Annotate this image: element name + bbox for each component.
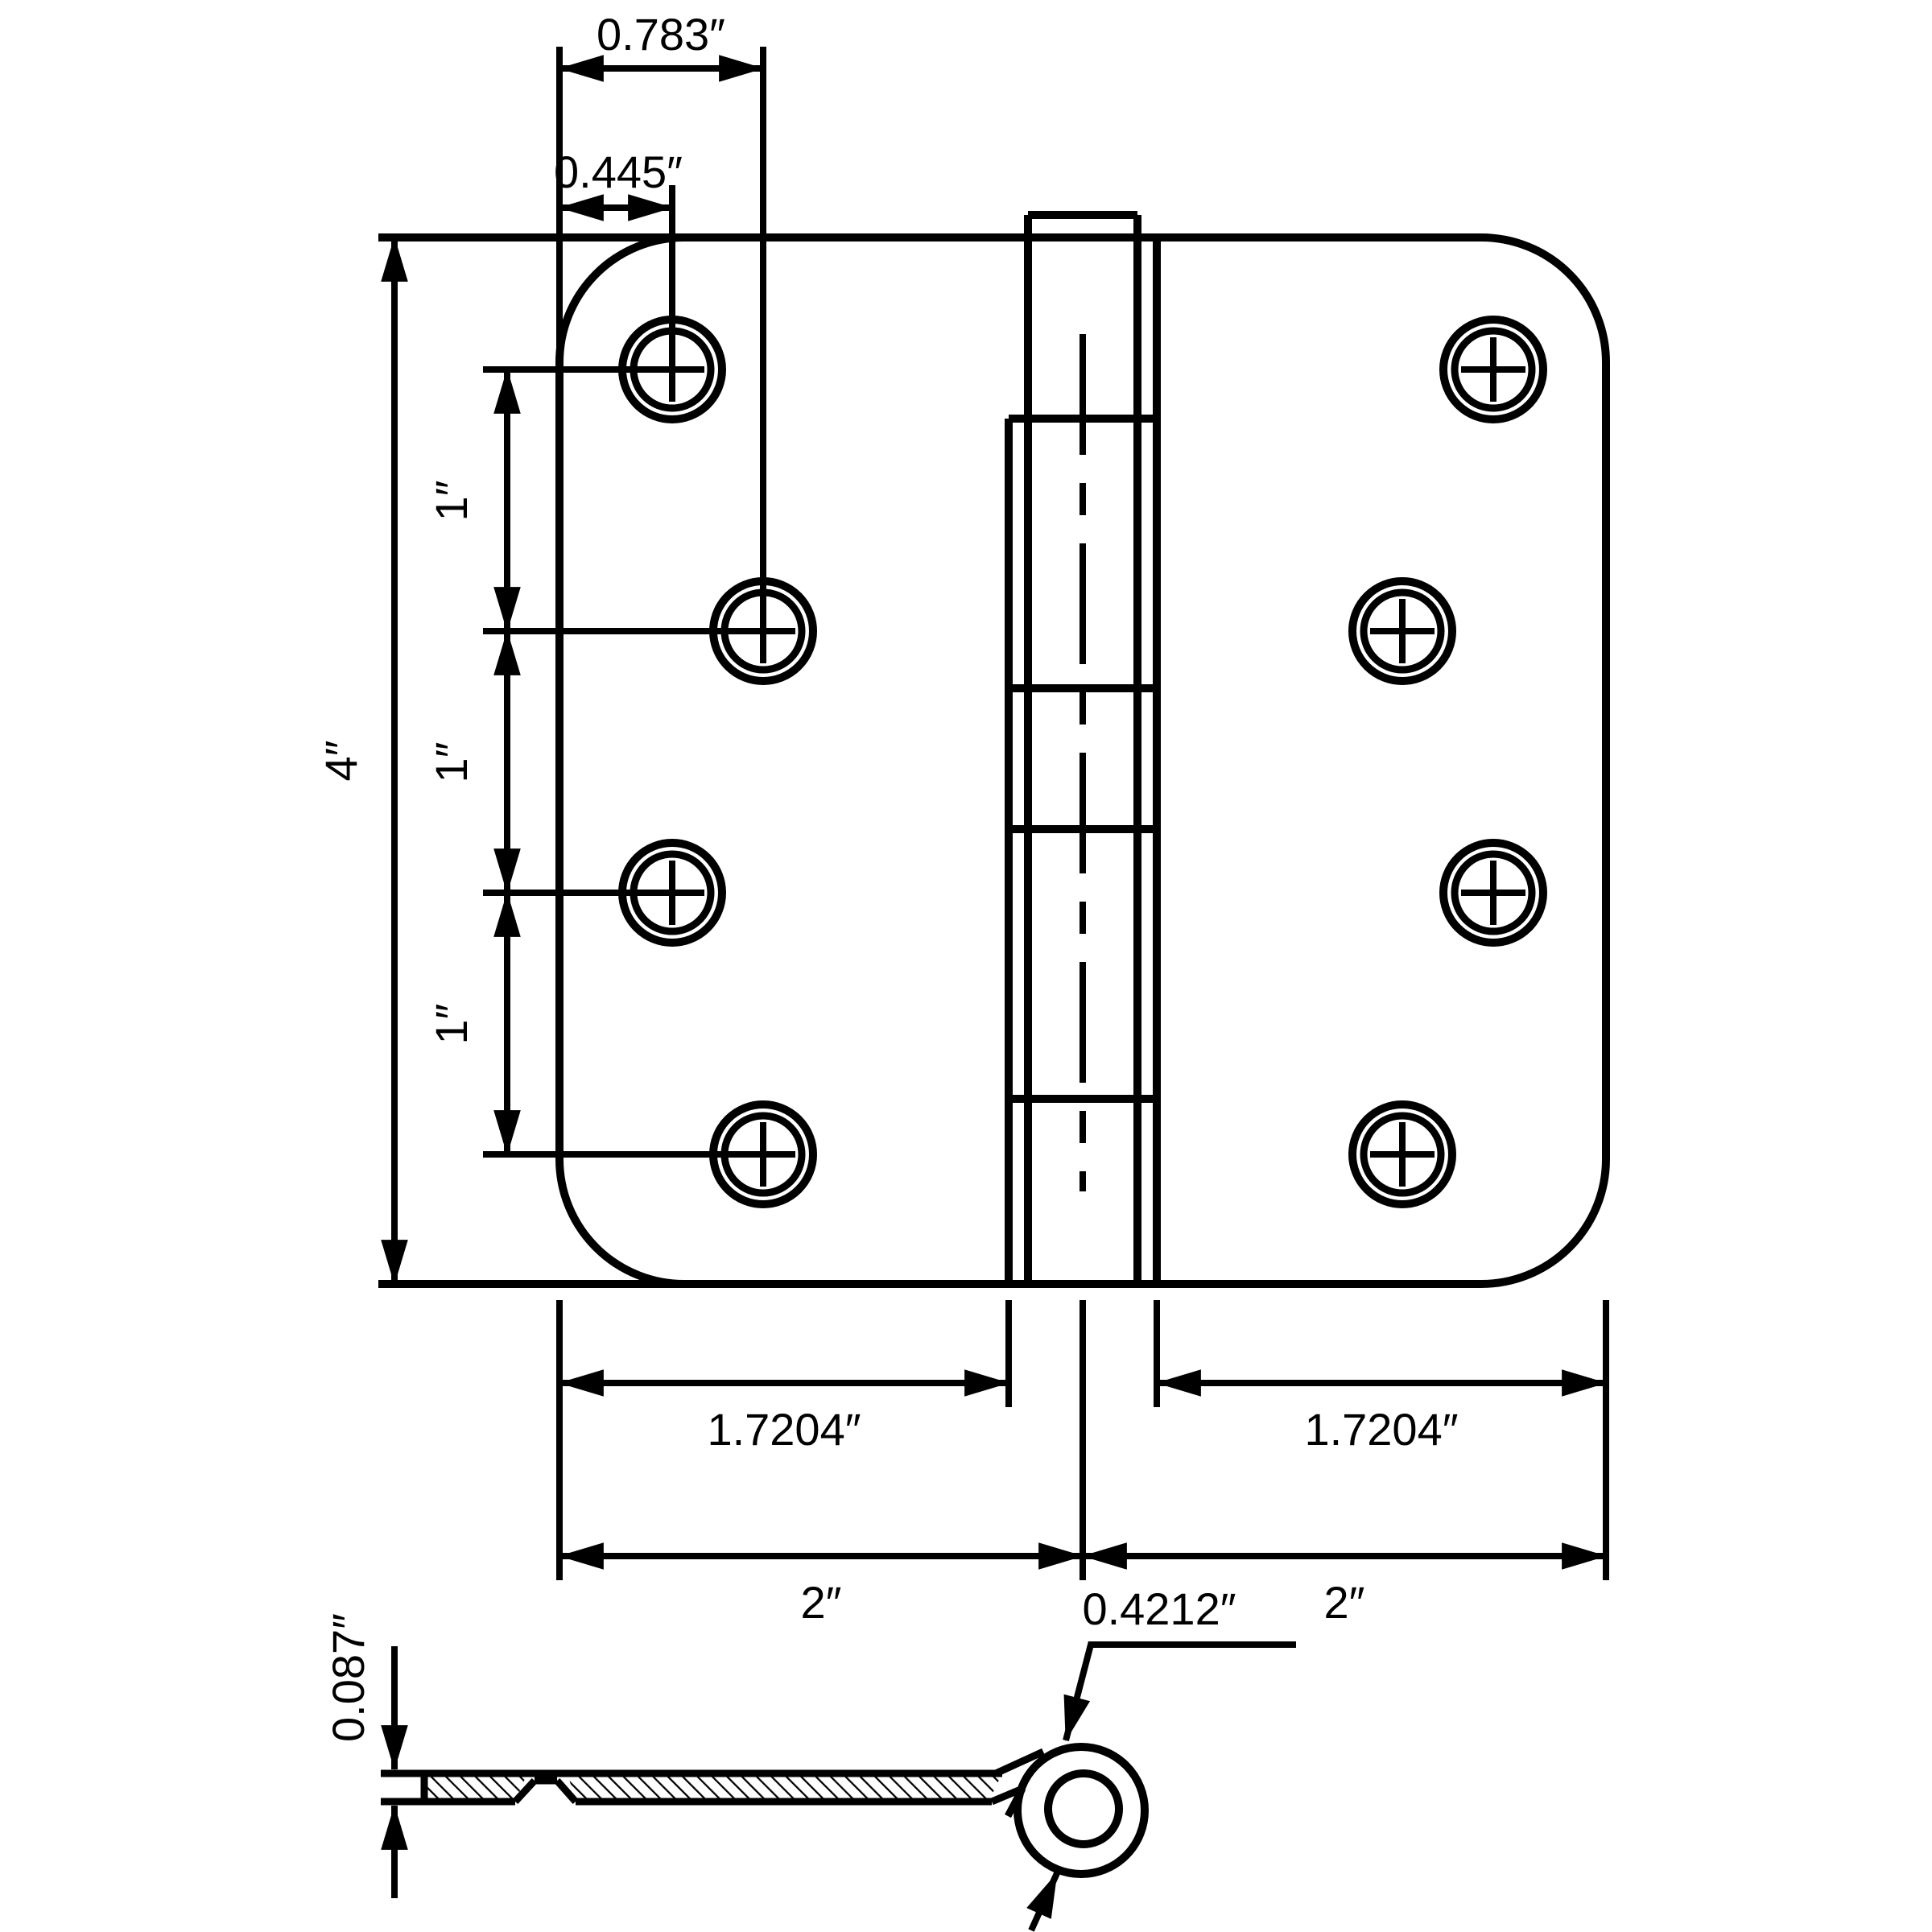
dimension-leaf-thickness: 0.087″ xyxy=(323,1613,394,1898)
screw-hole xyxy=(483,1104,813,1204)
corner-bottom-left xyxy=(559,1159,684,1284)
curl-outer-circle xyxy=(1018,1747,1145,1874)
hatch-area-right xyxy=(568,1773,1002,1802)
dimension-label: 1″ xyxy=(426,481,477,522)
corner-top-left xyxy=(559,237,684,362)
leader-line xyxy=(1066,1645,1296,1740)
dimension-label: 0.4212″ xyxy=(1082,1583,1236,1634)
dimension-overall-height: 4″ xyxy=(316,237,394,1284)
screw-hole xyxy=(483,843,722,943)
corner-top-right xyxy=(1481,237,1606,362)
screw-hole xyxy=(1352,581,1452,681)
leader-knuckle-diameter: 0.4212″ xyxy=(1066,1583,1296,1740)
hinge-barrel xyxy=(1009,215,1157,1284)
screw-holes-right-leaf xyxy=(1352,320,1543,1204)
dimension-leaf-widths: 1.7204″ 1.7204″ 2″ 2″ xyxy=(559,1300,1606,1628)
dimension-label: 0.783″ xyxy=(597,9,725,60)
screw-hole xyxy=(1443,843,1543,943)
dimension-hole-spacing: 1″ 1″ 1″ xyxy=(426,369,507,1154)
dimension-label: 2″ xyxy=(801,1577,842,1628)
dimension-label: 2″ xyxy=(1324,1577,1365,1628)
knuckle-curl xyxy=(992,1747,1145,1874)
hatch-area-left xyxy=(424,1773,527,1802)
curl-inner-circle xyxy=(1048,1773,1119,1844)
dimension-label: 1″ xyxy=(426,742,477,783)
dimension-edge-to-hole-col1: 0.445″ xyxy=(554,147,683,402)
screw-hole xyxy=(1352,1104,1452,1204)
corner-bottom-right xyxy=(1481,1159,1606,1284)
screw-hole xyxy=(483,320,722,419)
leaf-plate-section xyxy=(381,1773,1002,1802)
dimension-label: 1.7204″ xyxy=(707,1404,861,1455)
section-view: 0.087″ 0.4212″ xyxy=(323,1583,1296,1930)
plan-view: 0.783″ 0.445″ 4″ 1″ 1″ 1″ xyxy=(316,9,1606,1628)
dimension-label: 1″ xyxy=(426,1004,477,1045)
screw-hole xyxy=(1443,320,1543,419)
leader-line xyxy=(1031,1873,1057,1930)
dimension-label: 0.087″ xyxy=(323,1613,374,1742)
leader-curl-bottom xyxy=(1031,1873,1057,1930)
dimension-label: 4″ xyxy=(316,741,366,782)
hinge-technical-drawing: 0.783″ 0.445″ 4″ 1″ 1″ 1″ xyxy=(0,0,1932,1932)
dimension-label: 0.445″ xyxy=(554,147,683,197)
dimension-label: 1.7204″ xyxy=(1304,1404,1458,1455)
